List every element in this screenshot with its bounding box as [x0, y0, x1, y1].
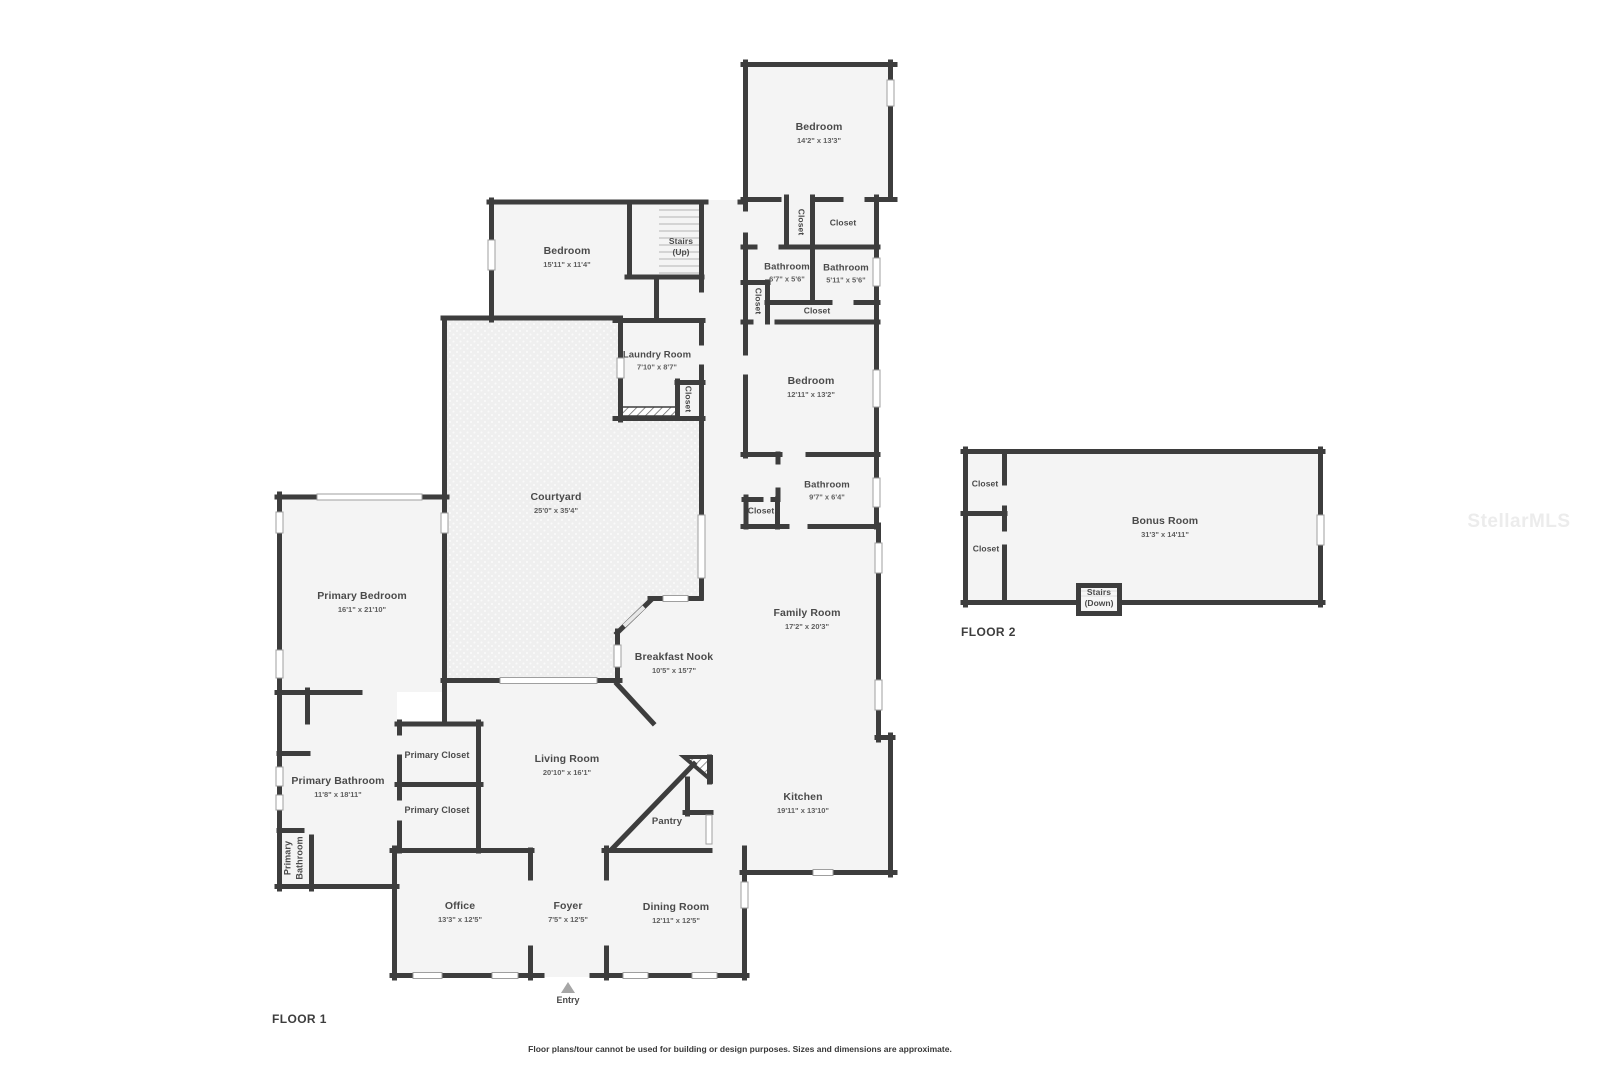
floor2-label: FLOOR 2 — [961, 625, 1016, 639]
floor1-label: FLOOR 1 — [272, 1012, 327, 1026]
room-label-bedroom-nw: Bedroom 15'11" x 11'4" — [543, 245, 590, 269]
stellar-mls-watermark: StellarMLS — [1467, 511, 1570, 533]
room-label-stairs-up: Stairs (Up) — [669, 236, 693, 258]
room-label-bathroom-a: Bathroom 6'7" x 5'6" — [764, 261, 810, 284]
entry-label: Entry — [556, 995, 579, 1005]
disclaimer-text: Floor plans/tour cannot be used for buil… — [528, 1044, 952, 1054]
room-label-closet-f2-upper: Closet — [972, 478, 999, 489]
room-label-closet-ne: Closet — [830, 217, 857, 228]
room-label-closet-bath-vertical: Closet — [752, 288, 763, 315]
room-label-dining-room: Dining Room 12'11" x 12'5" — [643, 901, 709, 925]
floor-plan-page: Bedroom 14'2" x 13'3" Closet Closet Bath… — [0, 0, 1600, 1066]
room-label-primary-bathroom: Primary Bathroom 11'8" x 18'11" — [291, 775, 384, 799]
room-label-office: Office 13'3" x 12'5" — [438, 900, 482, 924]
room-label-stairs-down: Stairs (Down) — [1085, 587, 1114, 609]
room-label-foyer: Foyer 7'5" x 12'5" — [548, 900, 588, 924]
room-label-primary-bedroom: Primary Bedroom 16'1" x 21'10" — [317, 590, 407, 614]
laundry-hatched-strip — [621, 407, 677, 416]
room-label-closet-strip: Closet — [804, 305, 831, 316]
room-label-family-room: Family Room 17'2" x 20'3" — [773, 607, 840, 631]
room-label-closet-ne-vertical: Closet — [795, 209, 806, 236]
entry-arrow-icon — [561, 982, 575, 993]
room-label-closet-laundry: Closet — [682, 386, 693, 413]
room-label-primary-closet-a: Primary Closet — [405, 750, 470, 762]
floor-plan-drawing — [0, 0, 1600, 1066]
room-label-bedroom-ne: Bedroom 14'2" x 13'3" — [796, 121, 843, 145]
room-label-closet-bath3: Closet — [748, 505, 775, 516]
room-label-bedroom-e: Bedroom 12'11" x 13'2" — [787, 375, 835, 399]
room-label-kitchen: Kitchen 19'11" x 13'10" — [777, 791, 829, 815]
room-label-courtyard: Courtyard 25'0" x 35'4" — [530, 491, 581, 515]
room-label-living-room: Living Room 20'10" x 16'1" — [535, 753, 600, 777]
room-label-primary-wc: Primary Bathroom — [282, 836, 305, 879]
room-label-closet-f2-lower: Closet — [973, 543, 1000, 554]
room-label-breakfast-nook: Breakfast Nook 10'5" x 15'7" — [635, 651, 713, 675]
room-label-laundry: Laundry Room 7'10" x 8'7" — [623, 349, 691, 372]
room-label-bathroom-b: Bathroom 5'11" x 5'6" — [823, 262, 869, 285]
room-label-bathroom-c: Bathroom 9'7" x 6'4" — [804, 479, 850, 502]
room-label-bonus-room: Bonus Room 31'3" x 14'11" — [1132, 515, 1198, 539]
room-label-pantry: Pantry — [652, 816, 682, 828]
floor1-room-fills — [277, 62, 893, 977]
room-label-primary-closet-b: Primary Closet — [405, 805, 470, 817]
